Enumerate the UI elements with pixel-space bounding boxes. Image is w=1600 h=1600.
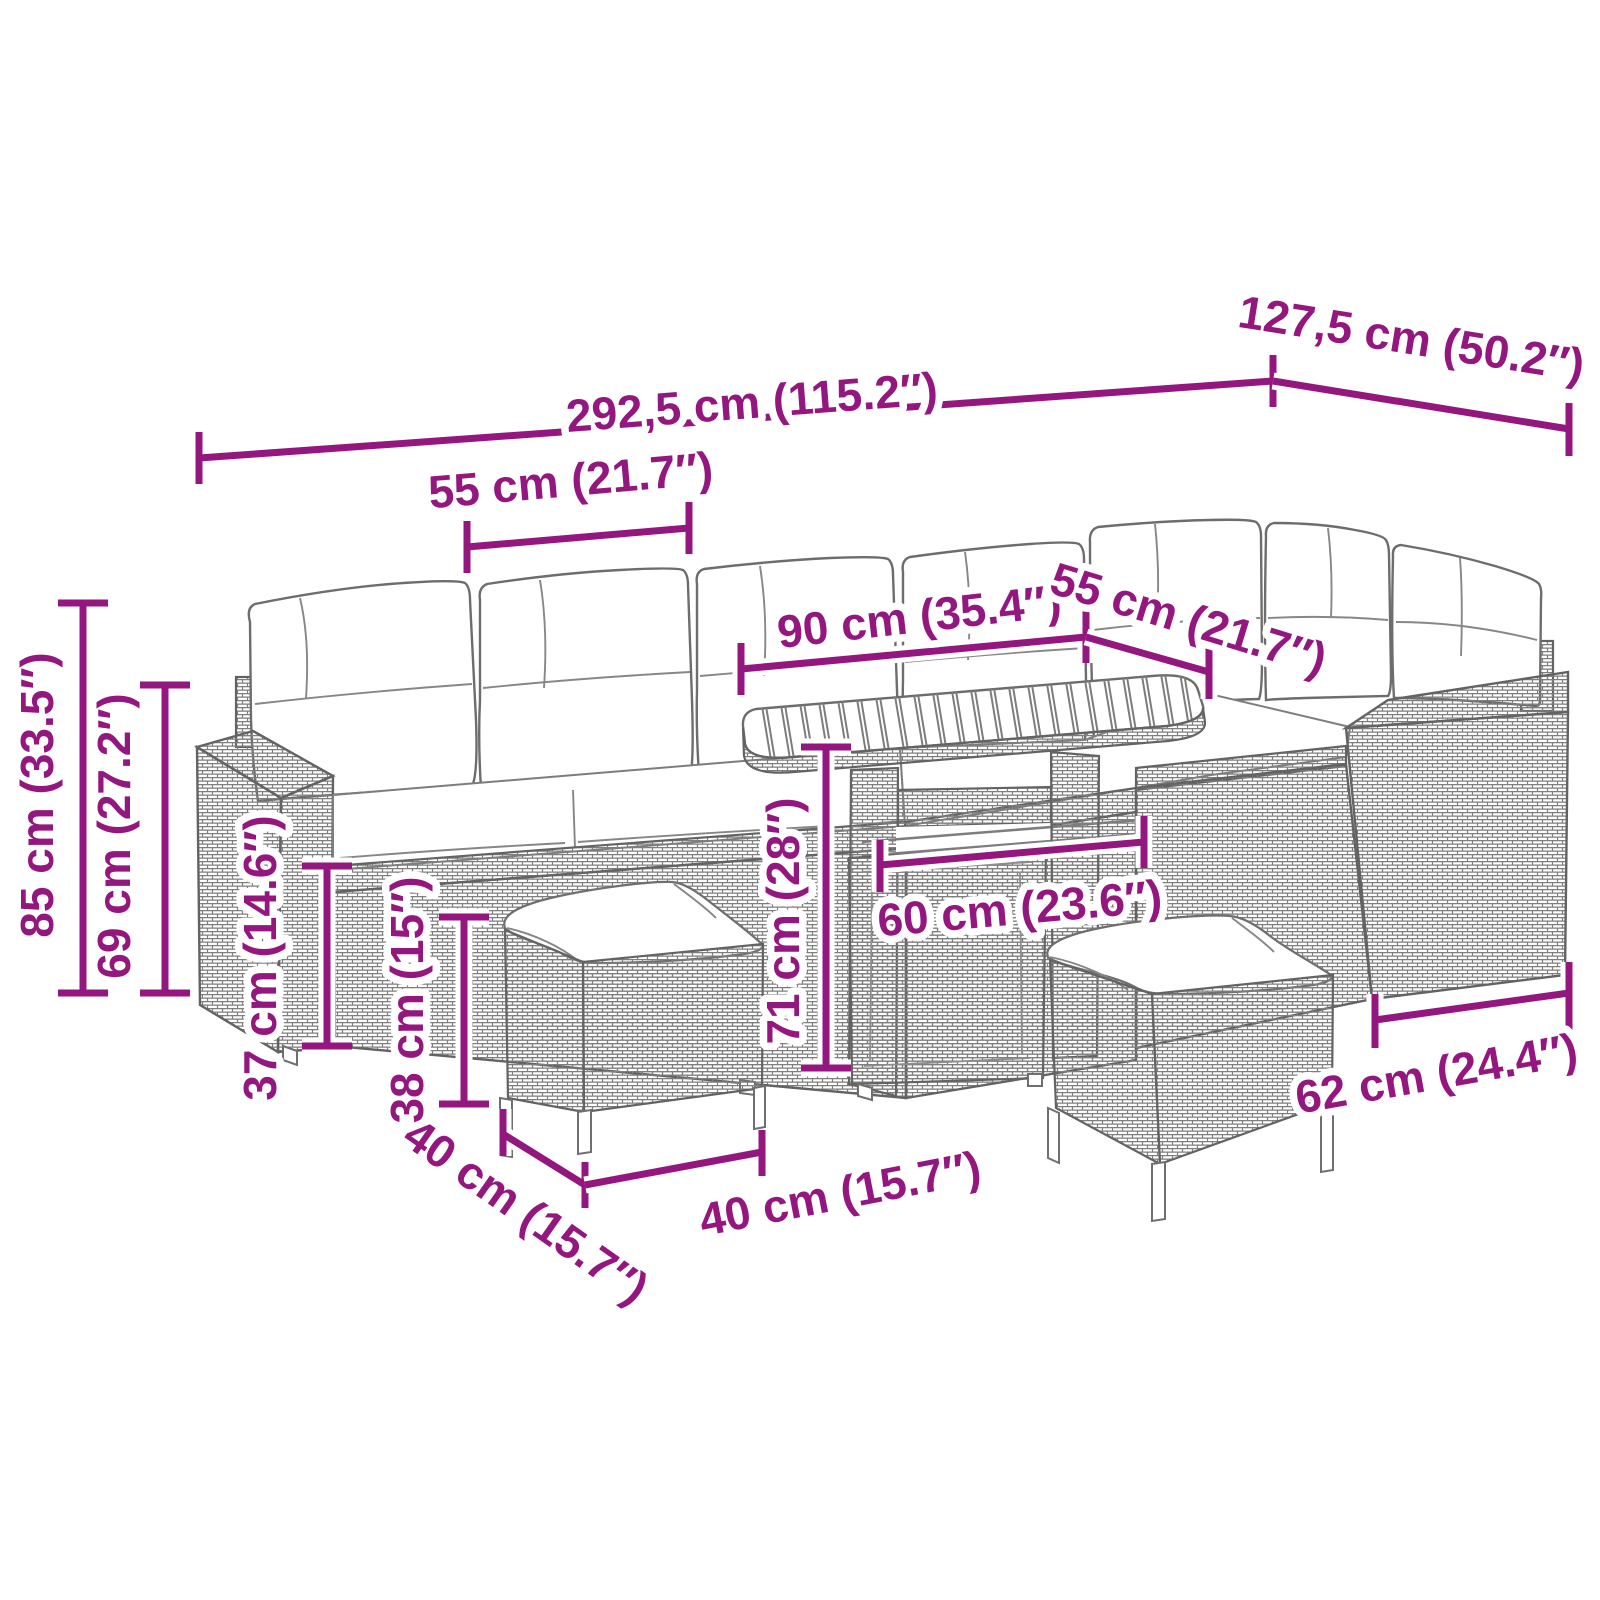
svg-text:85 cm (33.5″): 85 cm (33.5″) bbox=[11, 652, 63, 937]
svg-text:38 cm (15″): 38 cm (15″) bbox=[381, 876, 433, 1123]
svg-text:292,5 cm (115.2″): 292,5 cm (115.2″) bbox=[564, 362, 939, 442]
svg-text:69 cm (27.2″): 69 cm (27.2″) bbox=[88, 693, 140, 978]
svg-text:37 cm (14.6″): 37 cm (14.6″) bbox=[234, 815, 286, 1100]
svg-text:62 cm (24.4″): 62 cm (24.4″) bbox=[1291, 1023, 1581, 1124]
svg-text:55 cm (21.7″): 55 cm (21.7″) bbox=[426, 442, 715, 519]
svg-text:71 cm (28″): 71 cm (28″) bbox=[757, 797, 809, 1044]
